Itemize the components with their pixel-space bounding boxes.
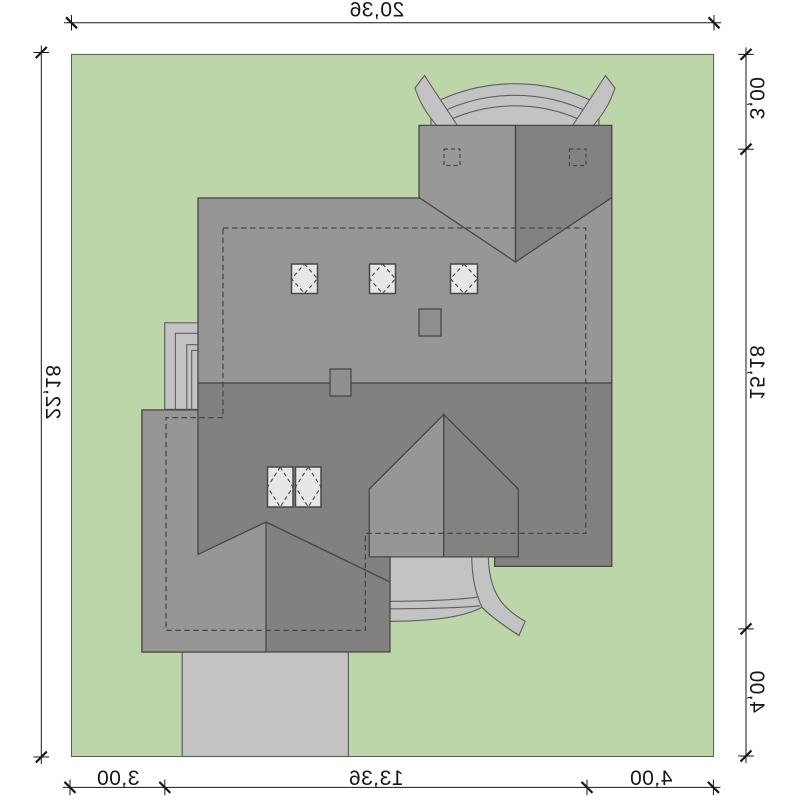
svg-text:3,00: 3,00: [97, 767, 140, 790]
svg-text:4,00: 4,00: [630, 767, 673, 790]
svg-text:20,36: 20,36: [349, 0, 404, 22]
svg-text:22,18: 22,18: [41, 364, 64, 419]
svg-text:4,00: 4,00: [745, 670, 768, 713]
svg-text:3,00: 3,00: [745, 77, 768, 120]
svg-text:13,36: 13,36: [348, 767, 403, 790]
svg-text:15,18: 15,18: [745, 345, 768, 400]
